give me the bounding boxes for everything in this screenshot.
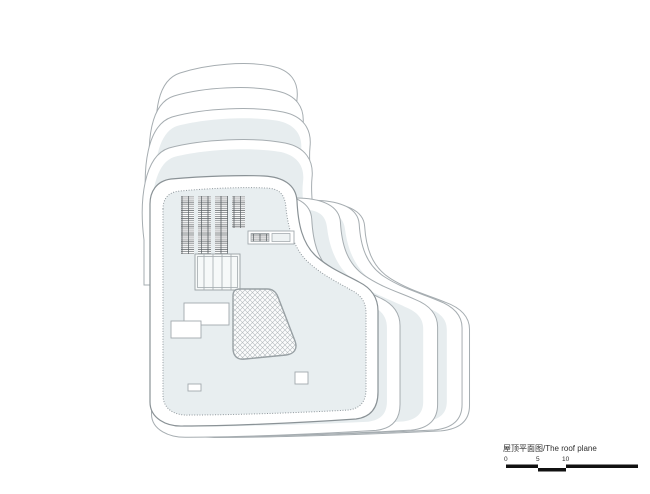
equipment-unit-cell-2	[272, 234, 290, 242]
roof-plan-drawing: 屋顶平面图/The roof plane 0 5 10	[0, 0, 650, 494]
drawing-sheet: 屋顶平面图/The roof plane 0 5 10	[0, 0, 650, 494]
scale-tick-0: 0	[504, 456, 508, 463]
scale-tick-5: 5	[536, 456, 540, 463]
scale-bar-segment-2	[538, 468, 566, 472]
title-block: 屋顶平面图/The roof plane 0 5 10	[503, 444, 638, 472]
skylight-grille	[195, 254, 240, 290]
roof-skylight-square	[295, 372, 308, 384]
roof-vent-small	[188, 384, 201, 391]
equipment-unit-cell-1	[251, 234, 269, 242]
scale-tick-10: 10	[562, 456, 570, 463]
skylight-grille-frame	[195, 254, 240, 290]
scale-bar: 0 5 10	[504, 456, 638, 472]
equipment-unit	[248, 231, 294, 244]
scale-bar-segment-3	[566, 465, 638, 469]
solar-panel-strip-2	[198, 196, 211, 254]
solar-panel-strip-4	[232, 196, 245, 228]
solar-panel-strip-1	[181, 196, 194, 254]
drawing-title: 屋顶平面图/The roof plane	[503, 444, 597, 453]
roof-hatch-box-small	[171, 321, 201, 338]
scale-bar-segment-1	[506, 465, 538, 469]
solar-panel-strip-3	[215, 196, 228, 254]
